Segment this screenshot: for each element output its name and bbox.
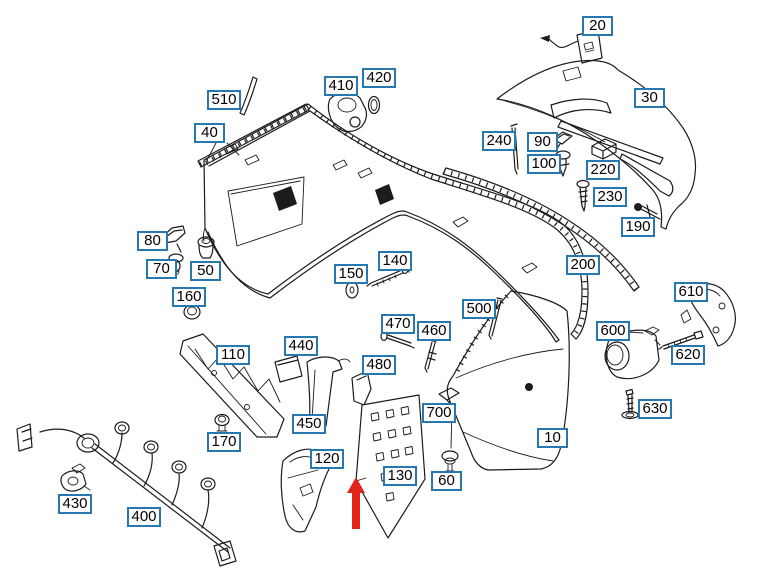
part-label-110[interactable]: 110 bbox=[216, 345, 250, 365]
part-label-240[interactable]: 240 bbox=[482, 131, 516, 151]
part-label-200[interactable]: 200 bbox=[566, 255, 600, 275]
part-60-art bbox=[442, 451, 458, 471]
part-label-20[interactable]: 20 bbox=[582, 16, 613, 36]
part-label-60[interactable]: 60 bbox=[431, 471, 462, 491]
part-label-500[interactable]: 500 bbox=[462, 299, 496, 319]
part-460-art bbox=[425, 340, 436, 372]
part-400-art bbox=[17, 422, 236, 566]
part-label-230[interactable]: 230 bbox=[593, 187, 627, 207]
part-label-440[interactable]: 440 bbox=[284, 336, 318, 356]
part-430-art bbox=[61, 464, 90, 491]
part-label-80[interactable]: 80 bbox=[137, 231, 168, 251]
part-label-130[interactable]: 130 bbox=[383, 466, 417, 486]
part-630-art bbox=[622, 390, 638, 419]
part-510-art bbox=[240, 77, 257, 115]
part-label-70[interactable]: 70 bbox=[146, 259, 177, 279]
part-label-610[interactable]: 610 bbox=[674, 282, 708, 302]
part-label-120[interactable]: 120 bbox=[310, 449, 344, 469]
part-label-460[interactable]: 460 bbox=[417, 321, 451, 341]
part-label-30[interactable]: 30 bbox=[634, 88, 665, 108]
part-label-90[interactable]: 90 bbox=[527, 132, 558, 152]
part-440-art bbox=[275, 356, 302, 382]
part-label-190[interactable]: 190 bbox=[621, 217, 655, 237]
part-220-art bbox=[592, 139, 616, 159]
part-label-450[interactable]: 450 bbox=[292, 414, 326, 434]
part-label-150[interactable]: 150 bbox=[334, 264, 368, 284]
part-230-art bbox=[577, 181, 589, 212]
part-label-50[interactable]: 50 bbox=[190, 261, 221, 281]
part-480-art bbox=[352, 371, 371, 405]
part-label-430[interactable]: 430 bbox=[58, 494, 92, 514]
part-label-100[interactable]: 100 bbox=[527, 154, 561, 174]
part-170-art bbox=[215, 415, 229, 432]
part-label-400[interactable]: 400 bbox=[127, 507, 161, 527]
part-label-220[interactable]: 220 bbox=[586, 160, 620, 180]
part-label-140[interactable]: 140 bbox=[378, 251, 412, 271]
part-label-40[interactable]: 40 bbox=[194, 123, 225, 143]
part-label-420[interactable]: 420 bbox=[362, 68, 396, 88]
part-label-10[interactable]: 10 bbox=[537, 428, 568, 448]
part-label-510[interactable]: 510 bbox=[207, 90, 241, 110]
part-label-700[interactable]: 700 bbox=[422, 403, 456, 423]
part-160-art bbox=[184, 305, 200, 319]
part-label-480[interactable]: 480 bbox=[362, 355, 396, 375]
part-label-630[interactable]: 630 bbox=[638, 399, 672, 419]
part-420-art bbox=[369, 97, 380, 114]
part-label-410[interactable]: 410 bbox=[324, 76, 358, 96]
part-label-170[interactable]: 170 bbox=[207, 432, 241, 452]
part-label-470[interactable]: 470 bbox=[381, 314, 415, 334]
part-150-art bbox=[346, 282, 358, 298]
part-label-600[interactable]: 600 bbox=[596, 321, 630, 341]
part-label-620[interactable]: 620 bbox=[671, 345, 705, 365]
part-label-160[interactable]: 160 bbox=[172, 287, 206, 307]
parts-diagram: 2042041030510402409010022023019080140200… bbox=[0, 0, 767, 578]
